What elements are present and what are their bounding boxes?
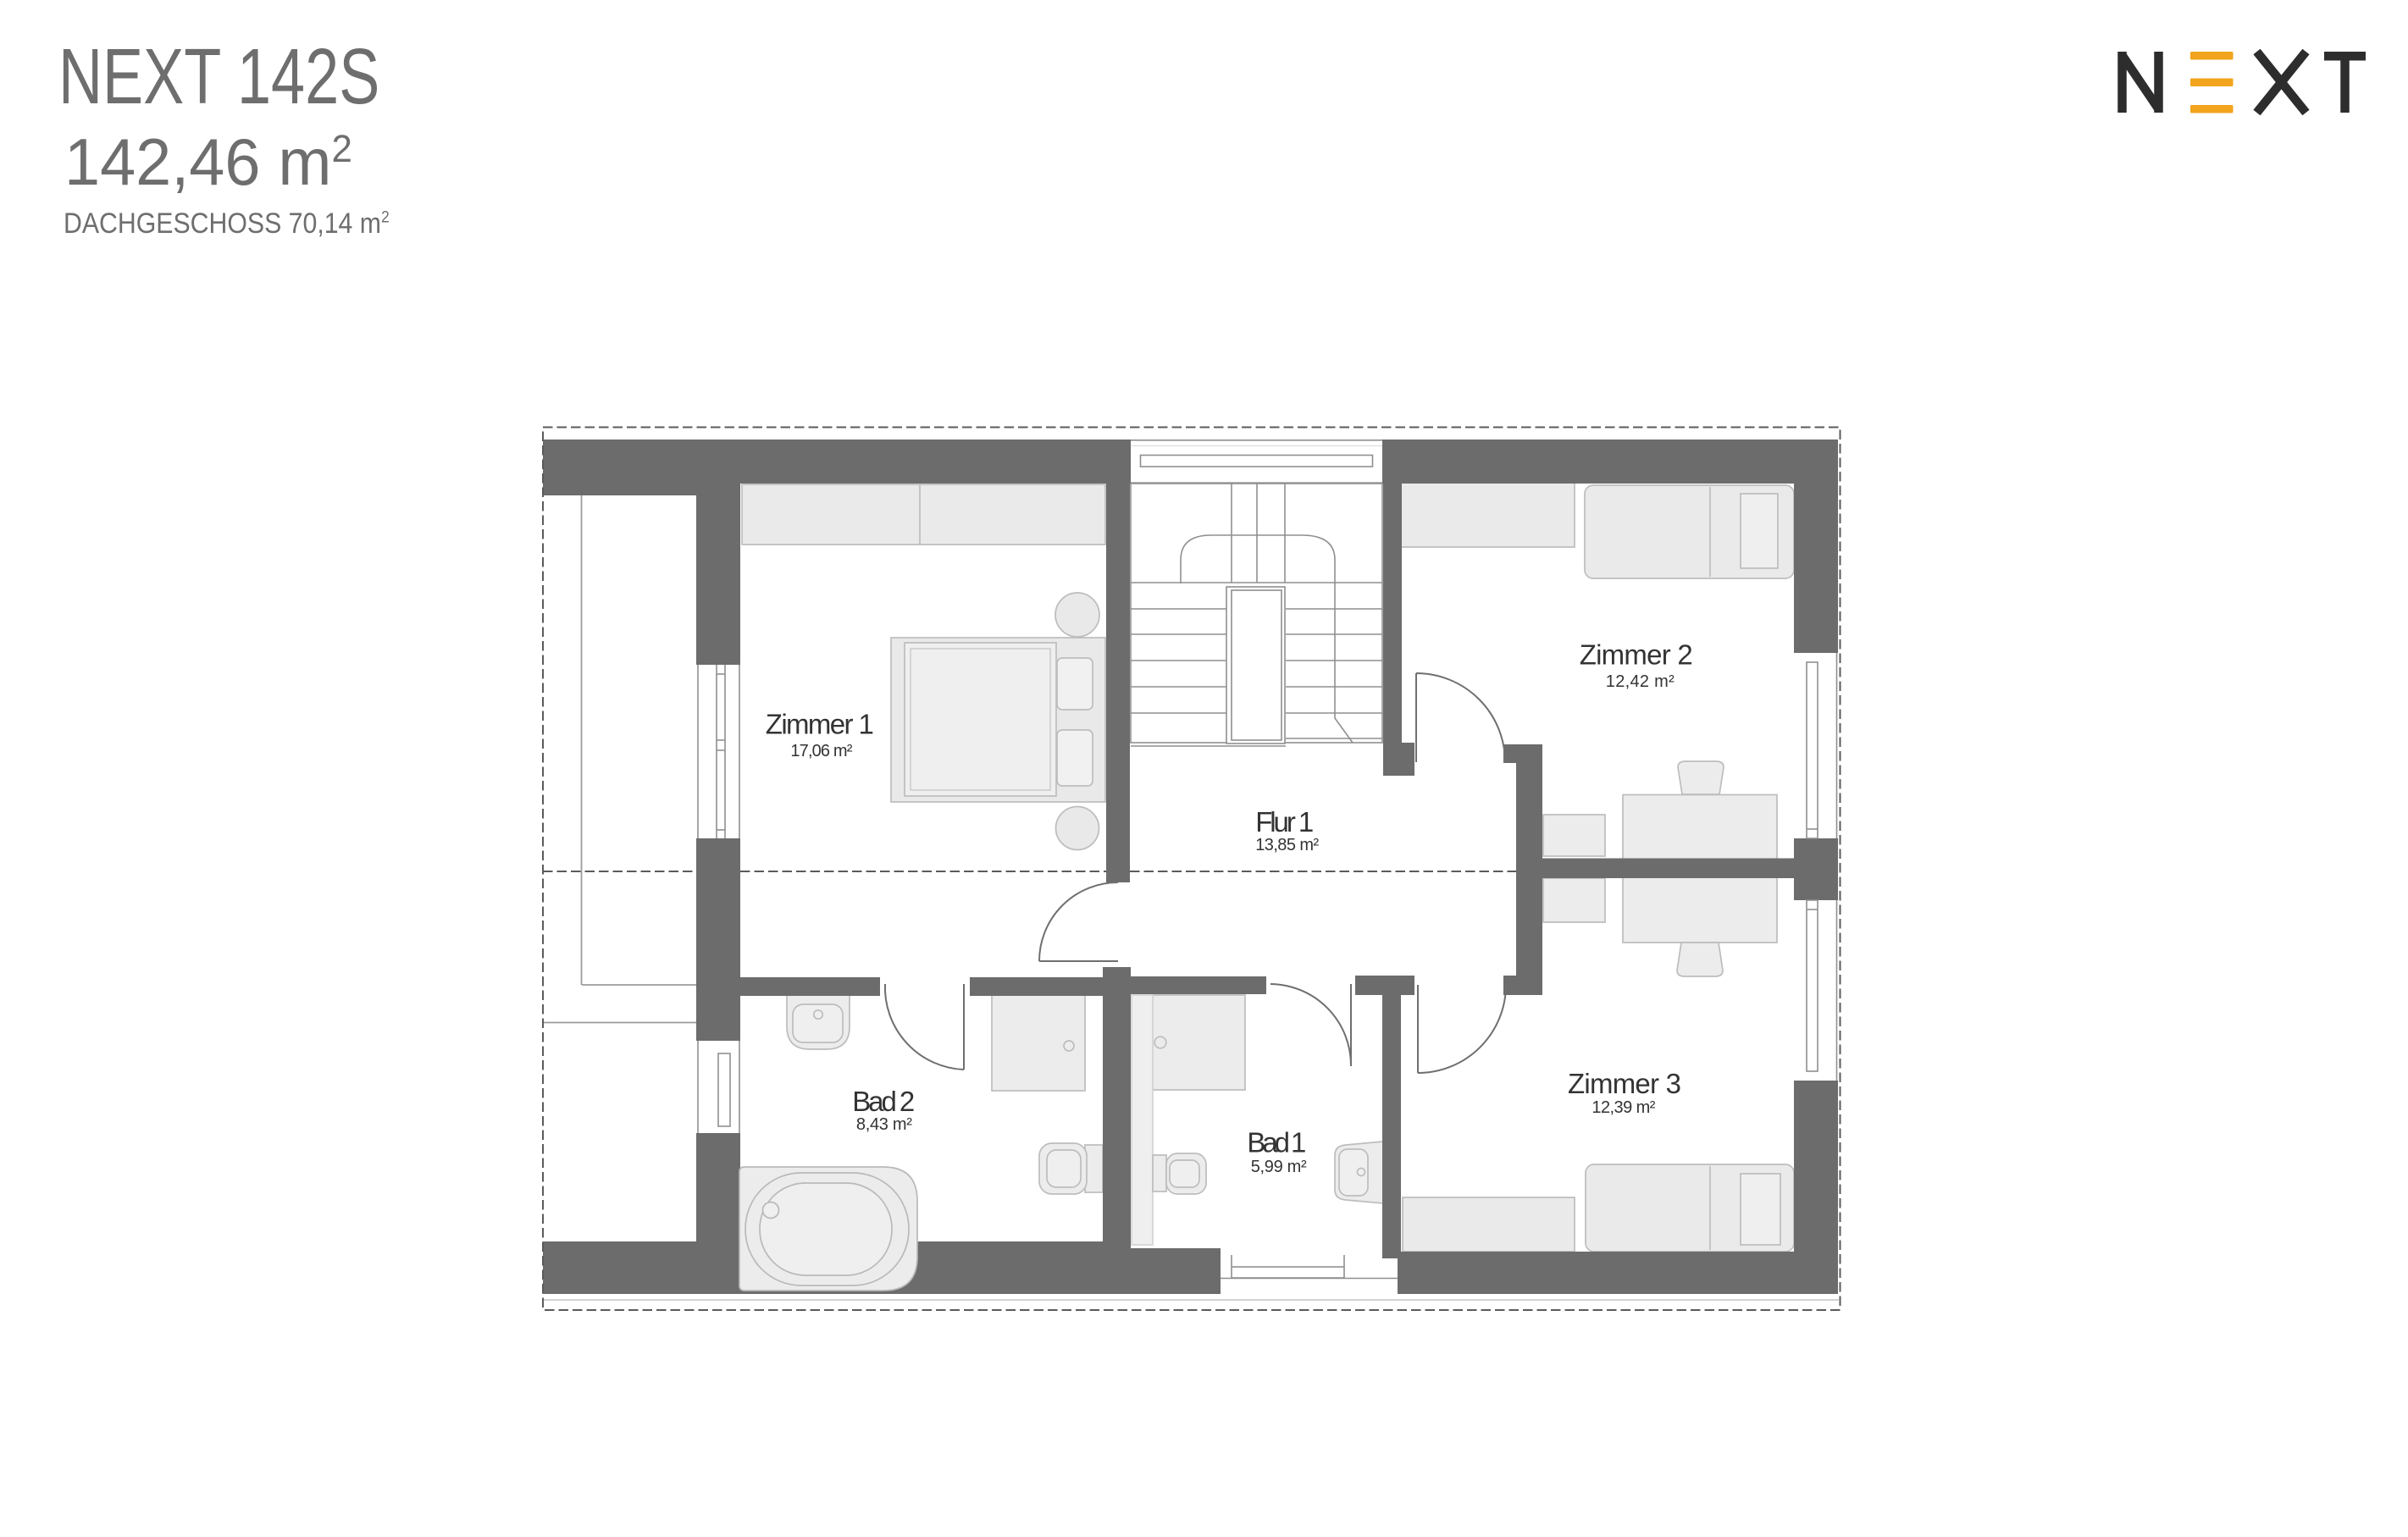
- svg-text:5,99 m²: 5,99 m²: [1251, 1158, 1307, 1176]
- svg-text:Zimmer 3: Zimmer 3: [1568, 1068, 1681, 1099]
- svg-text:Flur 1: Flur 1: [1255, 806, 1314, 838]
- svg-text:Bad 2: Bad 2: [852, 1086, 915, 1117]
- svg-text:8,43 m²: 8,43 m²: [856, 1115, 912, 1134]
- svg-text:13,85 m²: 13,85 m²: [1255, 836, 1319, 854]
- svg-text:12,42 m²: 12,42 m²: [1606, 672, 1675, 691]
- svg-text:Bad 1: Bad 1: [1247, 1127, 1306, 1158]
- svg-text:Zimmer 2: Zimmer 2: [1580, 639, 1693, 671]
- svg-text:17,06 m²: 17,06 m²: [790, 742, 852, 760]
- svg-text:12,39 m²: 12,39 m²: [1591, 1098, 1655, 1117]
- svg-text:Zimmer 1: Zimmer 1: [766, 709, 874, 740]
